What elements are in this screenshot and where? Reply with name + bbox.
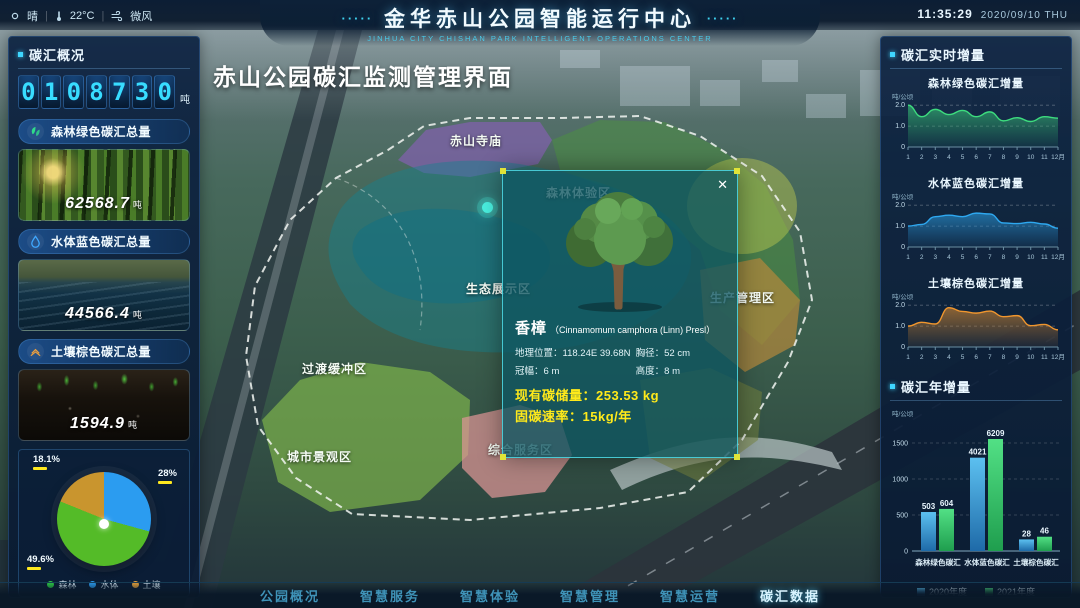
weather-strip: 晴 | 22°C | 微风 — [10, 8, 152, 24]
tree-photo — [515, 185, 725, 313]
soil-increment-chart: 土壤棕色碳汇增量 吨/公顷 2.0 1.0 0 123456789101112月 — [890, 275, 1062, 373]
svg-text:10: 10 — [1027, 254, 1035, 261]
soil-carbon-value: 1594.9吨 — [19, 415, 189, 433]
zone-label: 城市景观区 — [287, 448, 352, 465]
height-field: 高度：8 m — [636, 363, 725, 377]
svg-text:46: 46 — [1040, 527, 1049, 536]
annual-bar-chart: 吨/公顷 0 500 1000 1500 503 604 4021 6209 2… — [890, 407, 1062, 583]
svg-text:12月: 12月 — [1051, 353, 1064, 361]
counter-digit: 0 — [63, 75, 84, 109]
svg-text:12月: 12月 — [1051, 153, 1064, 161]
card-title: 水体蓝色碳汇总量 — [51, 233, 151, 250]
svg-text:水体蓝色碳汇: 水体蓝色碳汇 — [964, 557, 1010, 567]
annual-section-title: 碳汇年增量 — [890, 377, 1062, 401]
svg-text:11: 11 — [1041, 154, 1048, 161]
nav-tab-1[interactable]: 公园概况 — [258, 584, 322, 607]
svg-text:7: 7 — [988, 254, 992, 261]
svg-text:1500: 1500 — [892, 441, 908, 448]
svg-text:28: 28 — [1022, 529, 1031, 538]
svg-text:5: 5 — [961, 354, 965, 361]
counter-digit: 3 — [132, 75, 153, 109]
carbon-storage: 现有碳储量：253.53 kg — [515, 385, 725, 406]
pie-label-forest: 49.6% — [27, 554, 54, 570]
svg-text:9: 9 — [1015, 154, 1019, 161]
nav-tab-3[interactable]: 智慧体验 — [458, 584, 522, 607]
svg-text:0: 0 — [904, 549, 908, 556]
svg-text:2: 2 — [920, 254, 924, 261]
svg-text:土壤棕色碳汇: 土壤棕色碳汇 — [1013, 557, 1059, 567]
temperature: 22°C — [70, 10, 95, 22]
crown-field: 冠幅：6 m — [515, 363, 636, 377]
svg-text:2.0: 2.0 — [895, 302, 905, 309]
carbon-total-counter: 0108730吨 — [18, 75, 190, 109]
svg-text:4021: 4021 — [969, 448, 987, 457]
close-icon[interactable]: ✕ — [717, 177, 728, 193]
svg-text:503: 503 — [922, 502, 936, 511]
carbon-overview-panel: 碳汇概况 0108730吨 森林绿色碳汇总量 62568.7吨 水体蓝色碳汇总量 — [8, 36, 200, 598]
zone-label: 过渡缓冲区 — [302, 360, 367, 377]
svg-text:9: 9 — [1015, 254, 1019, 261]
svg-text:6: 6 — [974, 354, 978, 361]
counter-digit: 0 — [154, 75, 175, 109]
svg-text:4: 4 — [947, 354, 951, 361]
svg-text:吨/公顷: 吨/公顷 — [892, 92, 914, 101]
svg-text:2.0: 2.0 — [895, 202, 905, 209]
svg-text:3: 3 — [933, 354, 937, 361]
card-title: 土壤棕色碳汇总量 — [51, 343, 151, 360]
svg-text:5: 5 — [961, 154, 965, 161]
water-carbon-card: 水体蓝色碳汇总量 44566.4吨 — [18, 229, 190, 331]
nav-tab-2[interactable]: 智慧服务 — [358, 584, 422, 607]
svg-text:1: 1 — [906, 254, 910, 261]
title-decor-left: ····· — [342, 11, 374, 26]
left-section-title: 碳汇概况 — [18, 45, 190, 69]
svg-text:1.0: 1.0 — [895, 223, 905, 230]
svg-text:1: 1 — [906, 354, 910, 361]
page-title: 赤山公园碳汇监测管理界面 — [213, 58, 513, 92]
svg-text:8: 8 — [1002, 154, 1006, 161]
svg-text:11: 11 — [1041, 254, 1048, 261]
forest-photo: 62568.7吨 — [18, 149, 190, 221]
svg-text:0: 0 — [901, 144, 905, 151]
counter-unit: 吨 — [180, 91, 190, 106]
svg-text:6209: 6209 — [987, 429, 1005, 438]
carbon-metrics: 现有碳储量：253.53 kg 固碳速率：15kg/年 — [515, 385, 725, 428]
clock: 11:35:29 2020/09/10 THU — [917, 7, 1068, 21]
svg-text:1000: 1000 — [892, 477, 908, 484]
svg-text:6: 6 — [974, 254, 978, 261]
carbon-charts-panel: 碳汇实时增量 森林绿色碳汇增量 吨/公顷 2.0 1.0 0 123456789… — [880, 36, 1072, 598]
svg-text:5: 5 — [961, 254, 965, 261]
svg-text:500: 500 — [896, 513, 908, 520]
nav-tab-4[interactable]: 智慧管理 — [558, 584, 622, 607]
forest-carbon-card: 森林绿色碳汇总量 62568.7吨 — [18, 119, 190, 221]
geo-field: 地理位置：118.24E 39.68N — [515, 345, 636, 359]
svg-text:0: 0 — [901, 244, 905, 251]
svg-text:2.0: 2.0 — [895, 102, 905, 109]
forest-increment-chart: 森林绿色碳汇增量 吨/公顷 2.0 1.0 0 123456789101112月 — [890, 75, 1062, 173]
species-name: 香樟（Cinnamomum camphora (Linn) Presl） — [515, 317, 725, 338]
water-drop-icon — [27, 233, 44, 250]
counter-digit: 1 — [41, 75, 62, 109]
forest-card-header: 森林绿色碳汇总量 — [18, 119, 190, 144]
water-carbon-value: 44566.4吨 — [19, 305, 189, 323]
svg-text:2: 2 — [920, 154, 924, 161]
svg-text:4: 4 — [947, 254, 951, 261]
counter-digit: 0 — [18, 75, 39, 109]
svg-text:7: 7 — [988, 354, 992, 361]
counter-digit: 7 — [109, 75, 130, 109]
title-decor-right: ····· — [707, 11, 739, 26]
svg-text:3: 3 — [933, 154, 937, 161]
forest-carbon-value: 62568.7吨 — [19, 195, 189, 213]
title-tab: ····· 金华赤山公园智能运行中心 ····· Jinhua City Chi… — [260, 0, 820, 46]
pie-label-soil: 18.1% — [33, 454, 60, 470]
app-subtitle: Jinhua City Chishan Park Intelligent Ope… — [260, 34, 820, 43]
svg-text:7: 7 — [988, 154, 992, 161]
counter-digit: 8 — [86, 75, 107, 109]
svg-text:11: 11 — [1041, 354, 1048, 361]
carbon-rate: 固碳速率：15kg/年 — [515, 406, 725, 427]
svg-text:9: 9 — [1015, 354, 1019, 361]
soil-carbon-card: 土壤棕色碳汇总量 1594.9吨 — [18, 339, 190, 441]
svg-text:2: 2 — [920, 354, 924, 361]
svg-text:1.0: 1.0 — [895, 123, 905, 130]
wind-icon — [111, 11, 123, 21]
svg-text:6: 6 — [974, 154, 978, 161]
svg-text:1: 1 — [906, 154, 910, 161]
realtime-section-title: 碳汇实时增量 — [890, 45, 1062, 69]
svg-text:8: 8 — [1002, 354, 1006, 361]
tree-info-popup: ✕ 香樟（Cinnamomum camphora (Linn) Presl） 地… — [502, 170, 738, 458]
svg-text:12月: 12月 — [1051, 253, 1064, 261]
date-display: 2020/09/10 THU — [981, 10, 1068, 21]
svg-text:8: 8 — [1002, 254, 1006, 261]
nav-tab-5[interactable]: 智慧运营 — [658, 584, 722, 607]
svg-text:吨/公顷: 吨/公顷 — [892, 292, 914, 301]
tree-attributes: 地理位置：118.24E 39.68N 胸径：52 cm 冠幅：6 m 高度：8… — [515, 345, 725, 377]
zone-label: 赤山寺庙 — [450, 132, 502, 149]
svg-text:吨/公顷: 吨/公顷 — [892, 409, 914, 418]
water-photo: 44566.4吨 — [18, 259, 190, 331]
wind: 微风 — [130, 8, 152, 24]
carbon-share-pie-chart: 18.1% 28% 49.6% 森林水体土壤 — [18, 449, 190, 597]
svg-text:4: 4 — [947, 154, 951, 161]
svg-text:0: 0 — [901, 344, 905, 351]
svg-text:1.0: 1.0 — [895, 323, 905, 330]
app-title: ····· 金华赤山公园智能运行中心 ····· — [260, 3, 820, 33]
svg-text:10: 10 — [1027, 154, 1035, 161]
svg-text:604: 604 — [940, 499, 954, 508]
forest-leaves-icon — [27, 123, 44, 140]
pie-label-water: 28% — [158, 468, 177, 484]
soil-increment-plot: 吨/公顷 2.0 1.0 0 123456789101112月 — [890, 291, 1062, 373]
svg-text:10: 10 — [1027, 354, 1035, 361]
time-display: 11:35:29 — [917, 7, 972, 21]
soil-card-header: 土壤棕色碳汇总量 — [18, 339, 190, 364]
pie-center-dot — [99, 519, 109, 529]
water-increment-plot: 吨/公顷 2.0 1.0 0 123456789101112月 — [890, 191, 1062, 273]
water-increment-chart: 水体蓝色碳汇增量 吨/公顷 2.0 1.0 0 123456789101112月 — [890, 175, 1062, 273]
soil-photo: 1594.9吨 — [18, 369, 190, 441]
bottom-nav-items: 公园概况智慧服务智慧体验智慧管理智慧运营碳汇数据 — [0, 582, 1080, 608]
thermometer-icon — [55, 10, 63, 22]
svg-text:森林绿色碳汇: 森林绿色碳汇 — [915, 557, 961, 567]
dbh-field: 胸径：52 cm — [636, 345, 725, 359]
weather-condition: 晴 — [27, 8, 38, 24]
nav-tab-6[interactable]: 碳汇数据 — [758, 584, 822, 607]
tree-location-marker[interactable] — [482, 202, 493, 213]
forest-increment-plot: 吨/公顷 2.0 1.0 0 123456789101112月 — [890, 91, 1062, 173]
top-bar: 晴 | 22°C | 微风 ····· 金华赤山公园智能运行中心 ····· J… — [0, 0, 1080, 30]
soil-layers-icon — [27, 343, 44, 360]
sun-icon — [10, 11, 20, 21]
svg-text:3: 3 — [933, 254, 937, 261]
card-title: 森林绿色碳汇总量 — [51, 123, 151, 140]
svg-text:吨/公顷: 吨/公顷 — [892, 192, 914, 201]
water-card-header: 水体蓝色碳汇总量 — [18, 229, 190, 254]
dashboard-root: 赤山寺庙森林体验区生态展示区过渡缓冲区城市景观区综合服务区生产管理区 赤山公园碳… — [0, 0, 1080, 608]
